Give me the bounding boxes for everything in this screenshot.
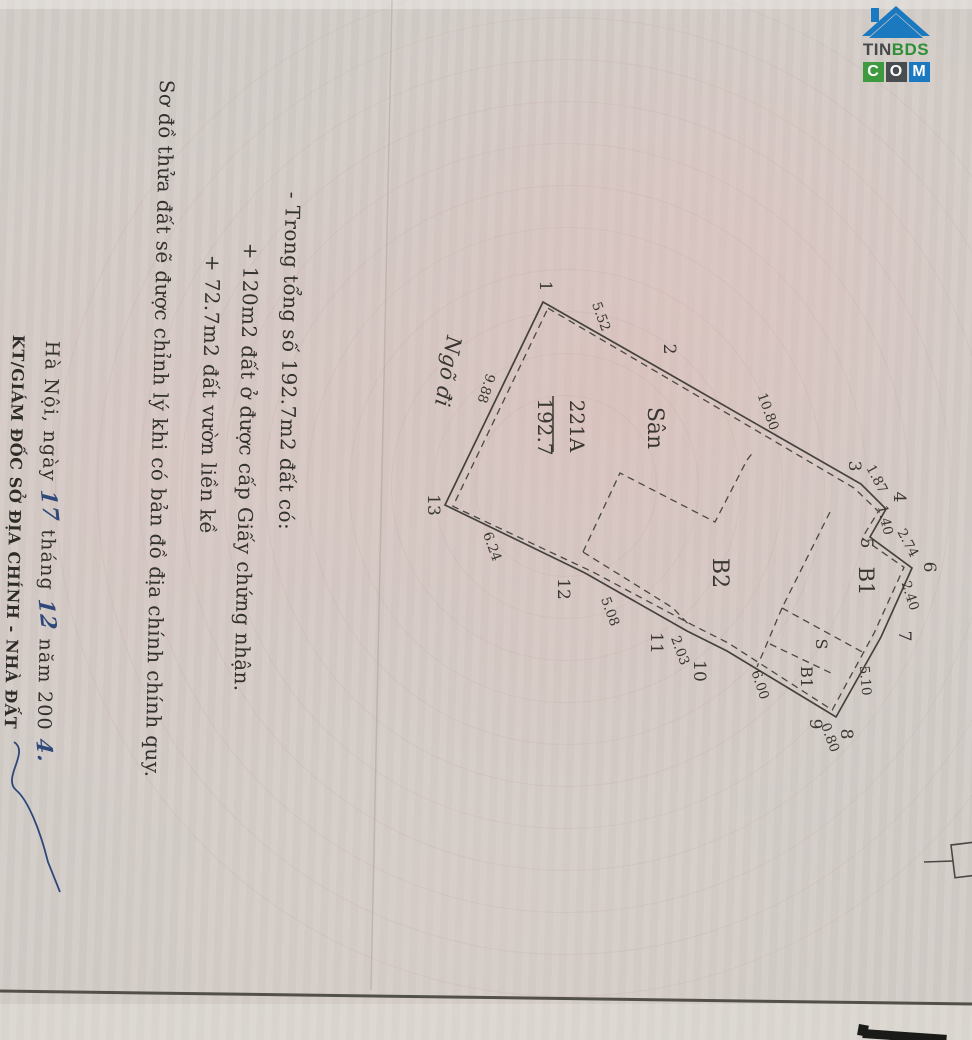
handwritten-month: 12 [34,598,59,631]
brand-name: TINBDS [859,40,933,60]
parcel-area-label: 192.7 [533,398,557,455]
vertex-label: 12 [553,578,573,600]
vertex-label: 5 [856,538,876,549]
edge-length-label: 9.88 [474,371,499,405]
fold-crease-line [371,0,392,990]
date-year-word: năm 200 [33,638,57,731]
vertex-label: 11 [646,632,666,654]
edge-length-label: 1.40 [874,504,896,537]
house-roof-icon [859,6,933,38]
edge-length-label: 2.40 [898,579,923,613]
vertex-label: 13 [423,494,443,516]
edge-length-label: 6.00 [748,668,773,702]
note-total-area: - Trong tổng số 192.7m2 đất có: [276,192,303,531]
brand-bds: BDS [892,40,929,59]
edge-length-label: 5.08 [597,595,622,629]
edge-length-label: 5.52 [588,300,613,334]
parcel-number-label: 221A [565,400,589,453]
tinbds-watermark-logo: TINBDS C O M [859,6,933,82]
block-c: C [863,62,884,82]
note-garden-area: + 72.7m2 đất vườn liền kề [197,255,223,535]
vertex-label: 6 [919,562,939,573]
black-smudge [857,1024,947,1040]
room-label: S [812,639,831,650]
vertex-label: 1 [535,281,555,292]
room-label: B2 [707,558,732,588]
edge-length-label: 10.80 [754,391,782,433]
edge-length-label: 2.03 [667,634,692,668]
page-edge-rule [0,991,972,1004]
date-month-word: tháng [36,529,59,591]
block-o: O [886,62,907,82]
brand-tin: TIN [863,40,892,59]
edge-length-label: 0.80 [817,721,842,755]
vertex-label: 10 [689,660,709,682]
vertex-label: 2 [659,344,679,355]
alley-label: Ngõ đi [430,333,466,408]
room-label: B1 [797,666,816,688]
handwritten-day: 17 [36,489,61,522]
edge-length-label: 6.24 [479,530,504,564]
block-m: M [909,62,930,82]
handwritten-year: 4. [32,738,56,764]
room-label: Sân [642,407,667,449]
vertex-label: 4 [889,492,909,503]
scanned-land-certificate-page: { "logo": { "brand_dark": "TIN", "brand_… [0,0,972,1040]
brand-com-blocks: C O M [859,62,933,82]
date-prefix: Hà Nội, ngày [38,341,63,482]
scale-mark [924,842,972,877]
vertex-label: 7 [894,631,914,642]
room-label: B1 [854,567,878,596]
chimney-icon [871,8,879,22]
diagram-labels: 123456789101112135.5210.801.871.402.742.… [423,281,939,755]
vertex-label: 3 [844,461,864,472]
edge-length-label: 1.87 [862,462,890,496]
edge-length-label: 5.10 [856,665,875,696]
edge-length-label: 2.74 [893,526,921,560]
